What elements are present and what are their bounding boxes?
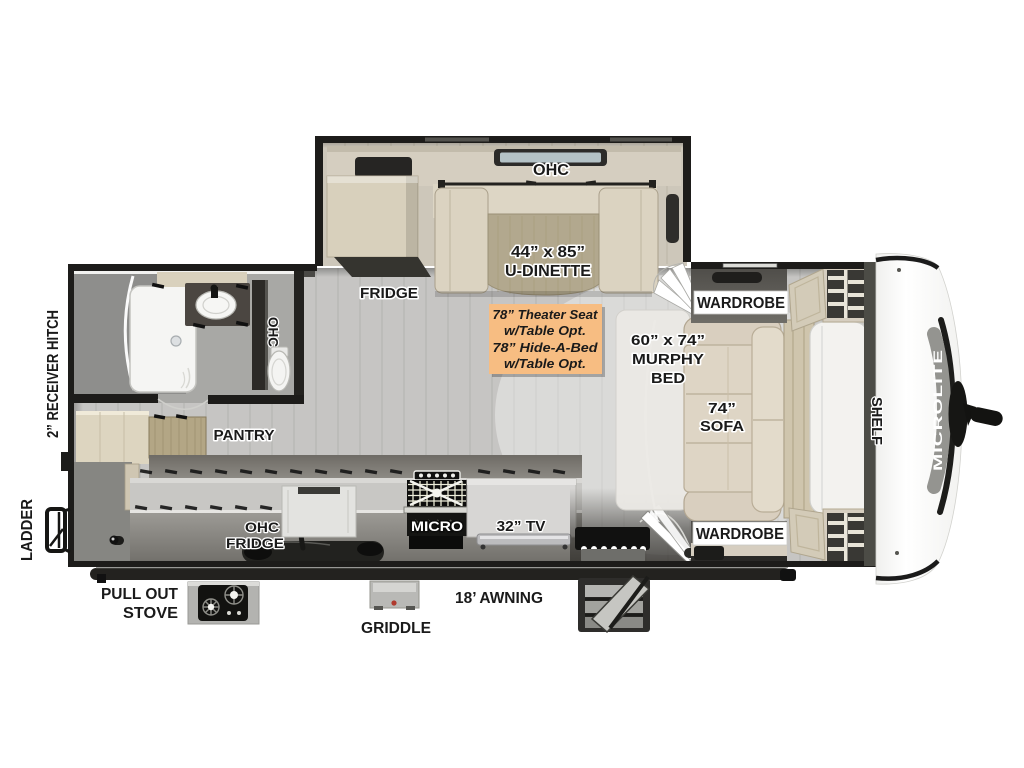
svg-text:WARDROBE: WARDROBE <box>696 526 784 543</box>
svg-text:78” Hide-A-Bed: 78” Hide-A-Bed <box>493 340 599 355</box>
svg-text:60” x 74”: 60” x 74” <box>631 333 705 349</box>
svg-text:MICRO: MICRO <box>411 518 463 534</box>
svg-text:18’ AWNING: 18’ AWNING <box>455 590 543 607</box>
svg-text:w/Table Opt.: w/Table Opt. <box>504 356 586 371</box>
svg-text:U-DINETTE: U-DINETTE <box>505 263 591 280</box>
svg-text:GRIDDLE: GRIDDLE <box>361 620 431 637</box>
svg-text:FRIDGE: FRIDGE <box>226 536 284 551</box>
svg-text:PANTRY: PANTRY <box>214 428 275 444</box>
svg-text:WARDROBE: WARDROBE <box>697 295 785 312</box>
svg-text:PULL OUT: PULL OUT <box>101 586 178 603</box>
svg-text:74”: 74” <box>708 401 736 417</box>
svg-text:OHC: OHC <box>245 520 279 535</box>
svg-text:OHC: OHC <box>533 162 569 179</box>
svg-text:w/Table Opt.: w/Table Opt. <box>504 323 586 338</box>
svg-text:OHC: OHC <box>265 317 280 347</box>
svg-text:FRIDGE: FRIDGE <box>360 286 418 302</box>
svg-text:STOVE: STOVE <box>123 605 178 622</box>
svg-text:BED: BED <box>651 371 685 387</box>
svg-text:78” Theater Seat: 78” Theater Seat <box>493 307 599 322</box>
svg-text:2” RECEIVER HITCH: 2” RECEIVER HITCH <box>45 310 62 438</box>
svg-text:MICROLITE: MICROLITE <box>933 349 945 471</box>
svg-text:SHELF: SHELF <box>868 397 884 445</box>
svg-text:MURPHY: MURPHY <box>632 352 704 368</box>
svg-text:32” TV: 32” TV <box>497 519 546 535</box>
svg-text:LADDER: LADDER <box>19 499 36 561</box>
svg-text:SOFA: SOFA <box>700 419 745 435</box>
svg-text:44” x 85”: 44” x 85” <box>511 244 585 261</box>
